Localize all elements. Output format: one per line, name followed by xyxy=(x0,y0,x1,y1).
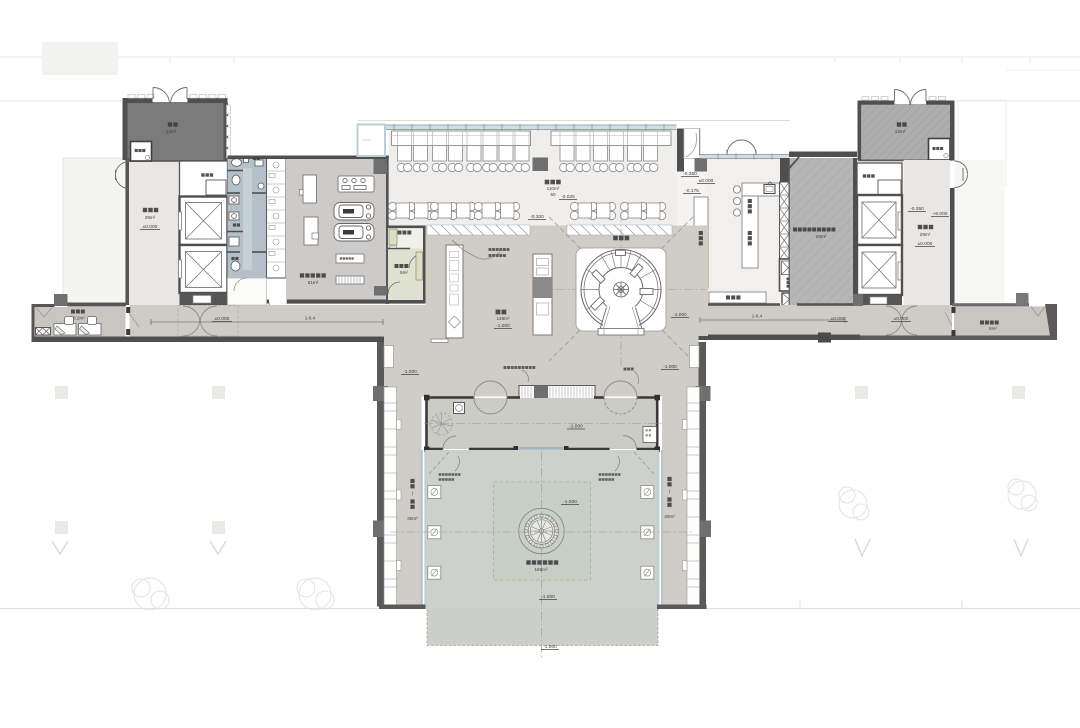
svg-text:-0.025: -0.025 xyxy=(561,194,575,200)
svg-text:±0.000: ±0.000 xyxy=(699,178,714,184)
svg-text:166m²: 166m² xyxy=(534,567,547,572)
svg-text:30m²: 30m² xyxy=(407,516,418,521)
svg-text:-1.000: -1.000 xyxy=(673,312,687,318)
svg-text:50: 50 xyxy=(550,192,556,197)
svg-text:-1.000: -1.000 xyxy=(541,594,555,600)
svg-text:29m²: 29m² xyxy=(920,232,931,237)
svg-text:-0.175: -0.175 xyxy=(685,188,699,194)
svg-text:-0.300: -0.300 xyxy=(530,214,544,220)
svg-text:12m²: 12m² xyxy=(166,129,177,134)
svg-text:29m²: 29m² xyxy=(145,215,156,220)
svg-text:-1.000: -1.000 xyxy=(563,499,577,505)
svg-text:148m²: 148m² xyxy=(496,316,509,321)
svg-text:1-6.4: 1-6.4 xyxy=(752,314,763,319)
svg-text:±0.000: ±0.000 xyxy=(831,316,846,322)
svg-text:28m²: 28m² xyxy=(816,234,827,239)
svg-text:-1.000: -1.000 xyxy=(663,364,677,370)
svg-text:30m²: 30m² xyxy=(664,514,675,519)
svg-text:110m²: 110m² xyxy=(547,186,560,191)
svg-text:1-6.4: 1-6.4 xyxy=(305,316,316,321)
svg-text:8.2m²: 8.2m² xyxy=(73,316,85,321)
svg-text:8m²: 8m² xyxy=(989,326,997,331)
svg-text:-1.000: -1.000 xyxy=(403,369,417,375)
svg-text:±0.000: ±0.000 xyxy=(894,316,909,322)
svg-text:61m²: 61m² xyxy=(308,280,319,285)
svg-text:±0.000: ±0.000 xyxy=(215,316,230,322)
svg-text:-1.000: -1.000 xyxy=(496,323,510,329)
svg-text:-0.350: -0.350 xyxy=(683,171,697,177)
svg-text:+6.000: +6.000 xyxy=(933,211,948,217)
svg-text:5m²: 5m² xyxy=(400,270,408,275)
svg-text:-1.000: -1.000 xyxy=(569,424,583,430)
svg-text:±0.000: ±0.000 xyxy=(143,224,158,230)
svg-text:-1.000: -1.000 xyxy=(543,644,557,650)
svg-text:12m²: 12m² xyxy=(895,129,906,134)
svg-text:±0.000: ±0.000 xyxy=(918,241,933,247)
svg-text:-0.350: -0.350 xyxy=(910,206,924,212)
